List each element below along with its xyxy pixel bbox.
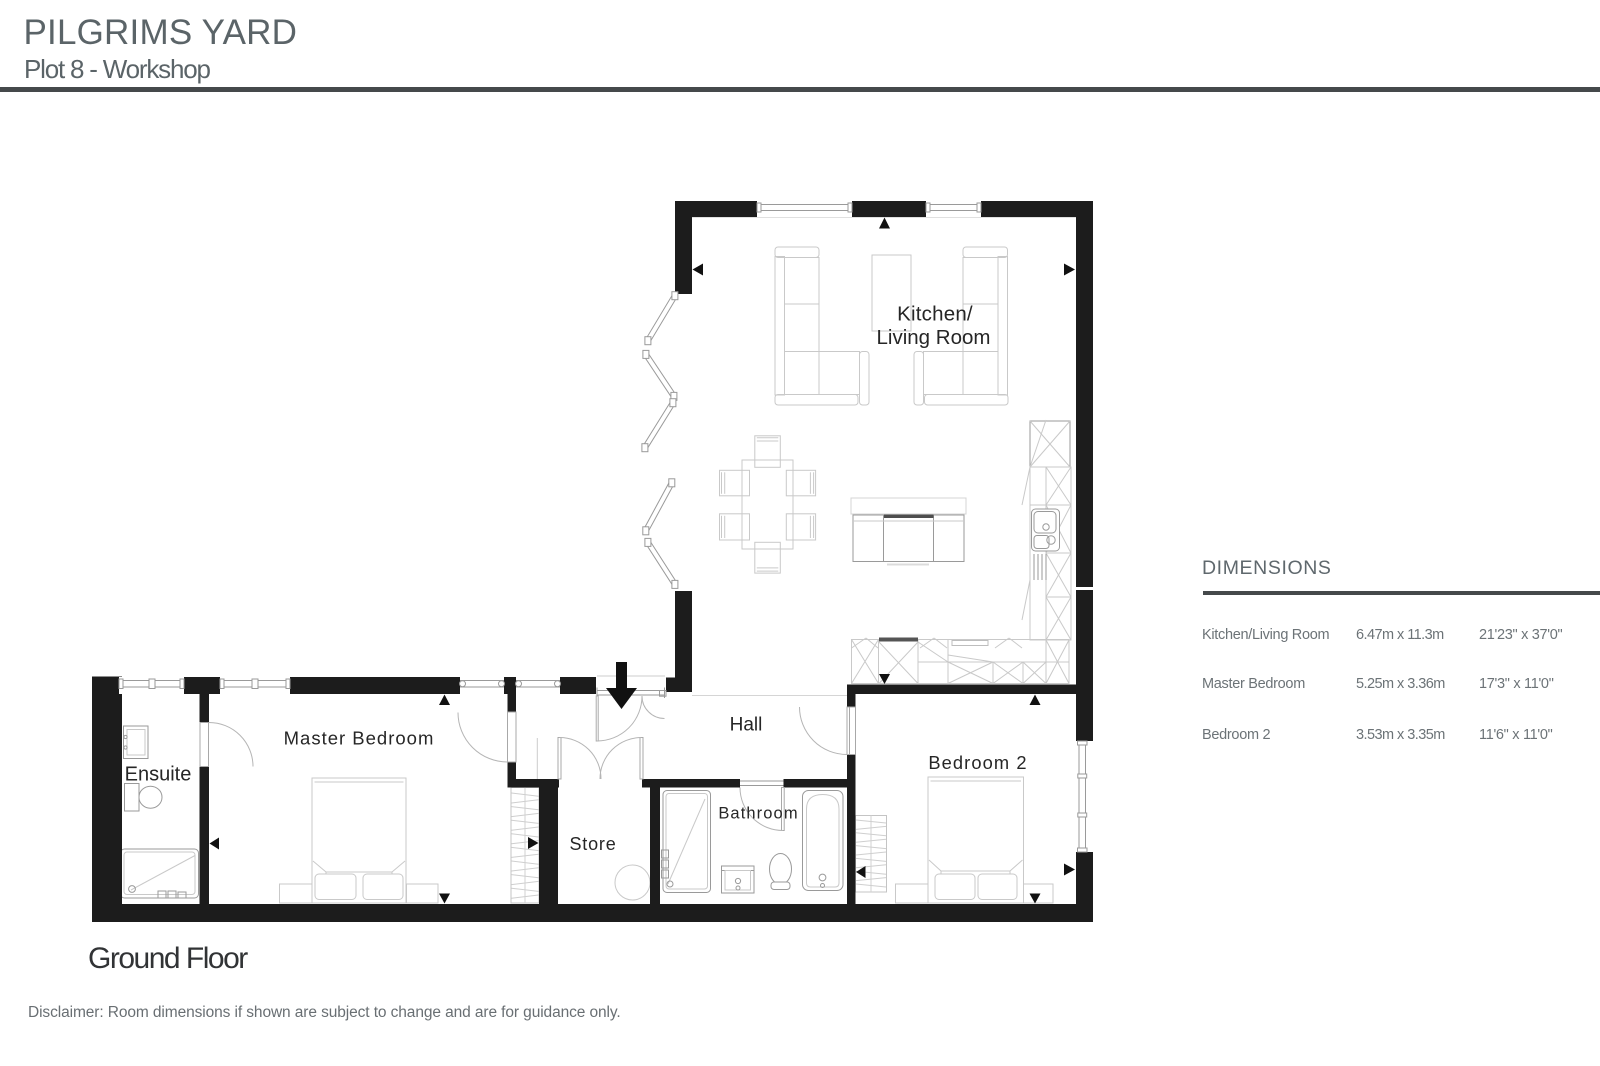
- svg-text:Store: Store: [569, 834, 616, 854]
- svg-text:Master Bedroom: Master Bedroom: [284, 728, 435, 749]
- svg-text:Hall: Hall: [730, 715, 763, 736]
- svg-text:Bedroom 2: Bedroom 2: [928, 752, 1027, 773]
- svg-text:Kitchen/: Kitchen/: [897, 303, 973, 326]
- svg-text:Ensuite: Ensuite: [125, 764, 192, 786]
- svg-text:Bathroom: Bathroom: [718, 805, 798, 823]
- svg-text:Living Room: Living Room: [877, 326, 991, 349]
